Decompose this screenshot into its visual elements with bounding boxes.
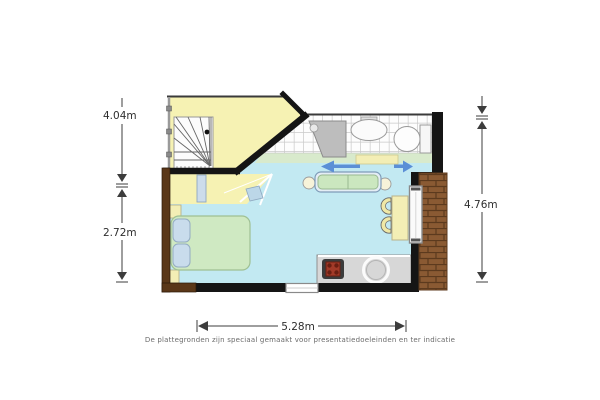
stair-post xyxy=(205,130,210,135)
arrowhead-left-icon xyxy=(198,321,208,331)
stove xyxy=(322,259,344,279)
arrow-right-shaft xyxy=(394,165,403,169)
pillow xyxy=(173,219,190,242)
kitchen-group xyxy=(317,255,411,285)
pillow xyxy=(173,244,190,267)
wall-left-brown xyxy=(162,168,170,292)
dimension-right xyxy=(476,96,488,282)
arrowhead-up-icon xyxy=(117,189,127,197)
arrowhead-up-icon xyxy=(477,121,487,129)
side-table xyxy=(303,177,315,189)
disclaimer-text: De plattegronden zijn speciaal gemaakt v… xyxy=(0,336,600,344)
sofa-group xyxy=(303,172,391,192)
arrowhead-down-icon xyxy=(117,174,127,182)
kitchen-sink xyxy=(364,258,389,283)
arrowhead-down-icon xyxy=(477,272,487,280)
dimension-left-lower-label: 2.72m xyxy=(103,227,137,239)
dimension-right-label: 4.76m xyxy=(464,199,498,211)
arrowhead-down-icon xyxy=(117,272,127,280)
floorplan-image: 4.04m 2.72m 4.76m 5.28m De plattegronden… xyxy=(0,0,600,400)
toilet xyxy=(394,125,431,153)
glass-door xyxy=(410,186,423,243)
balcony-brick xyxy=(419,173,447,290)
window xyxy=(286,284,318,293)
dimension-left-upper-label: 4.04m xyxy=(103,110,137,122)
arrowhead-right-icon xyxy=(395,321,405,331)
threshold xyxy=(356,155,398,164)
radiator xyxy=(197,175,206,202)
shower-drain xyxy=(310,124,318,132)
arrow-left-shaft xyxy=(334,165,360,169)
dimension-bottom-label: 5.28m xyxy=(281,321,315,333)
spiral-staircase xyxy=(174,117,213,171)
dining-table xyxy=(392,196,408,240)
wall-bottom-brown xyxy=(162,283,196,292)
wall-bathroom-right xyxy=(432,112,443,181)
arrowhead-down-icon xyxy=(477,106,487,114)
